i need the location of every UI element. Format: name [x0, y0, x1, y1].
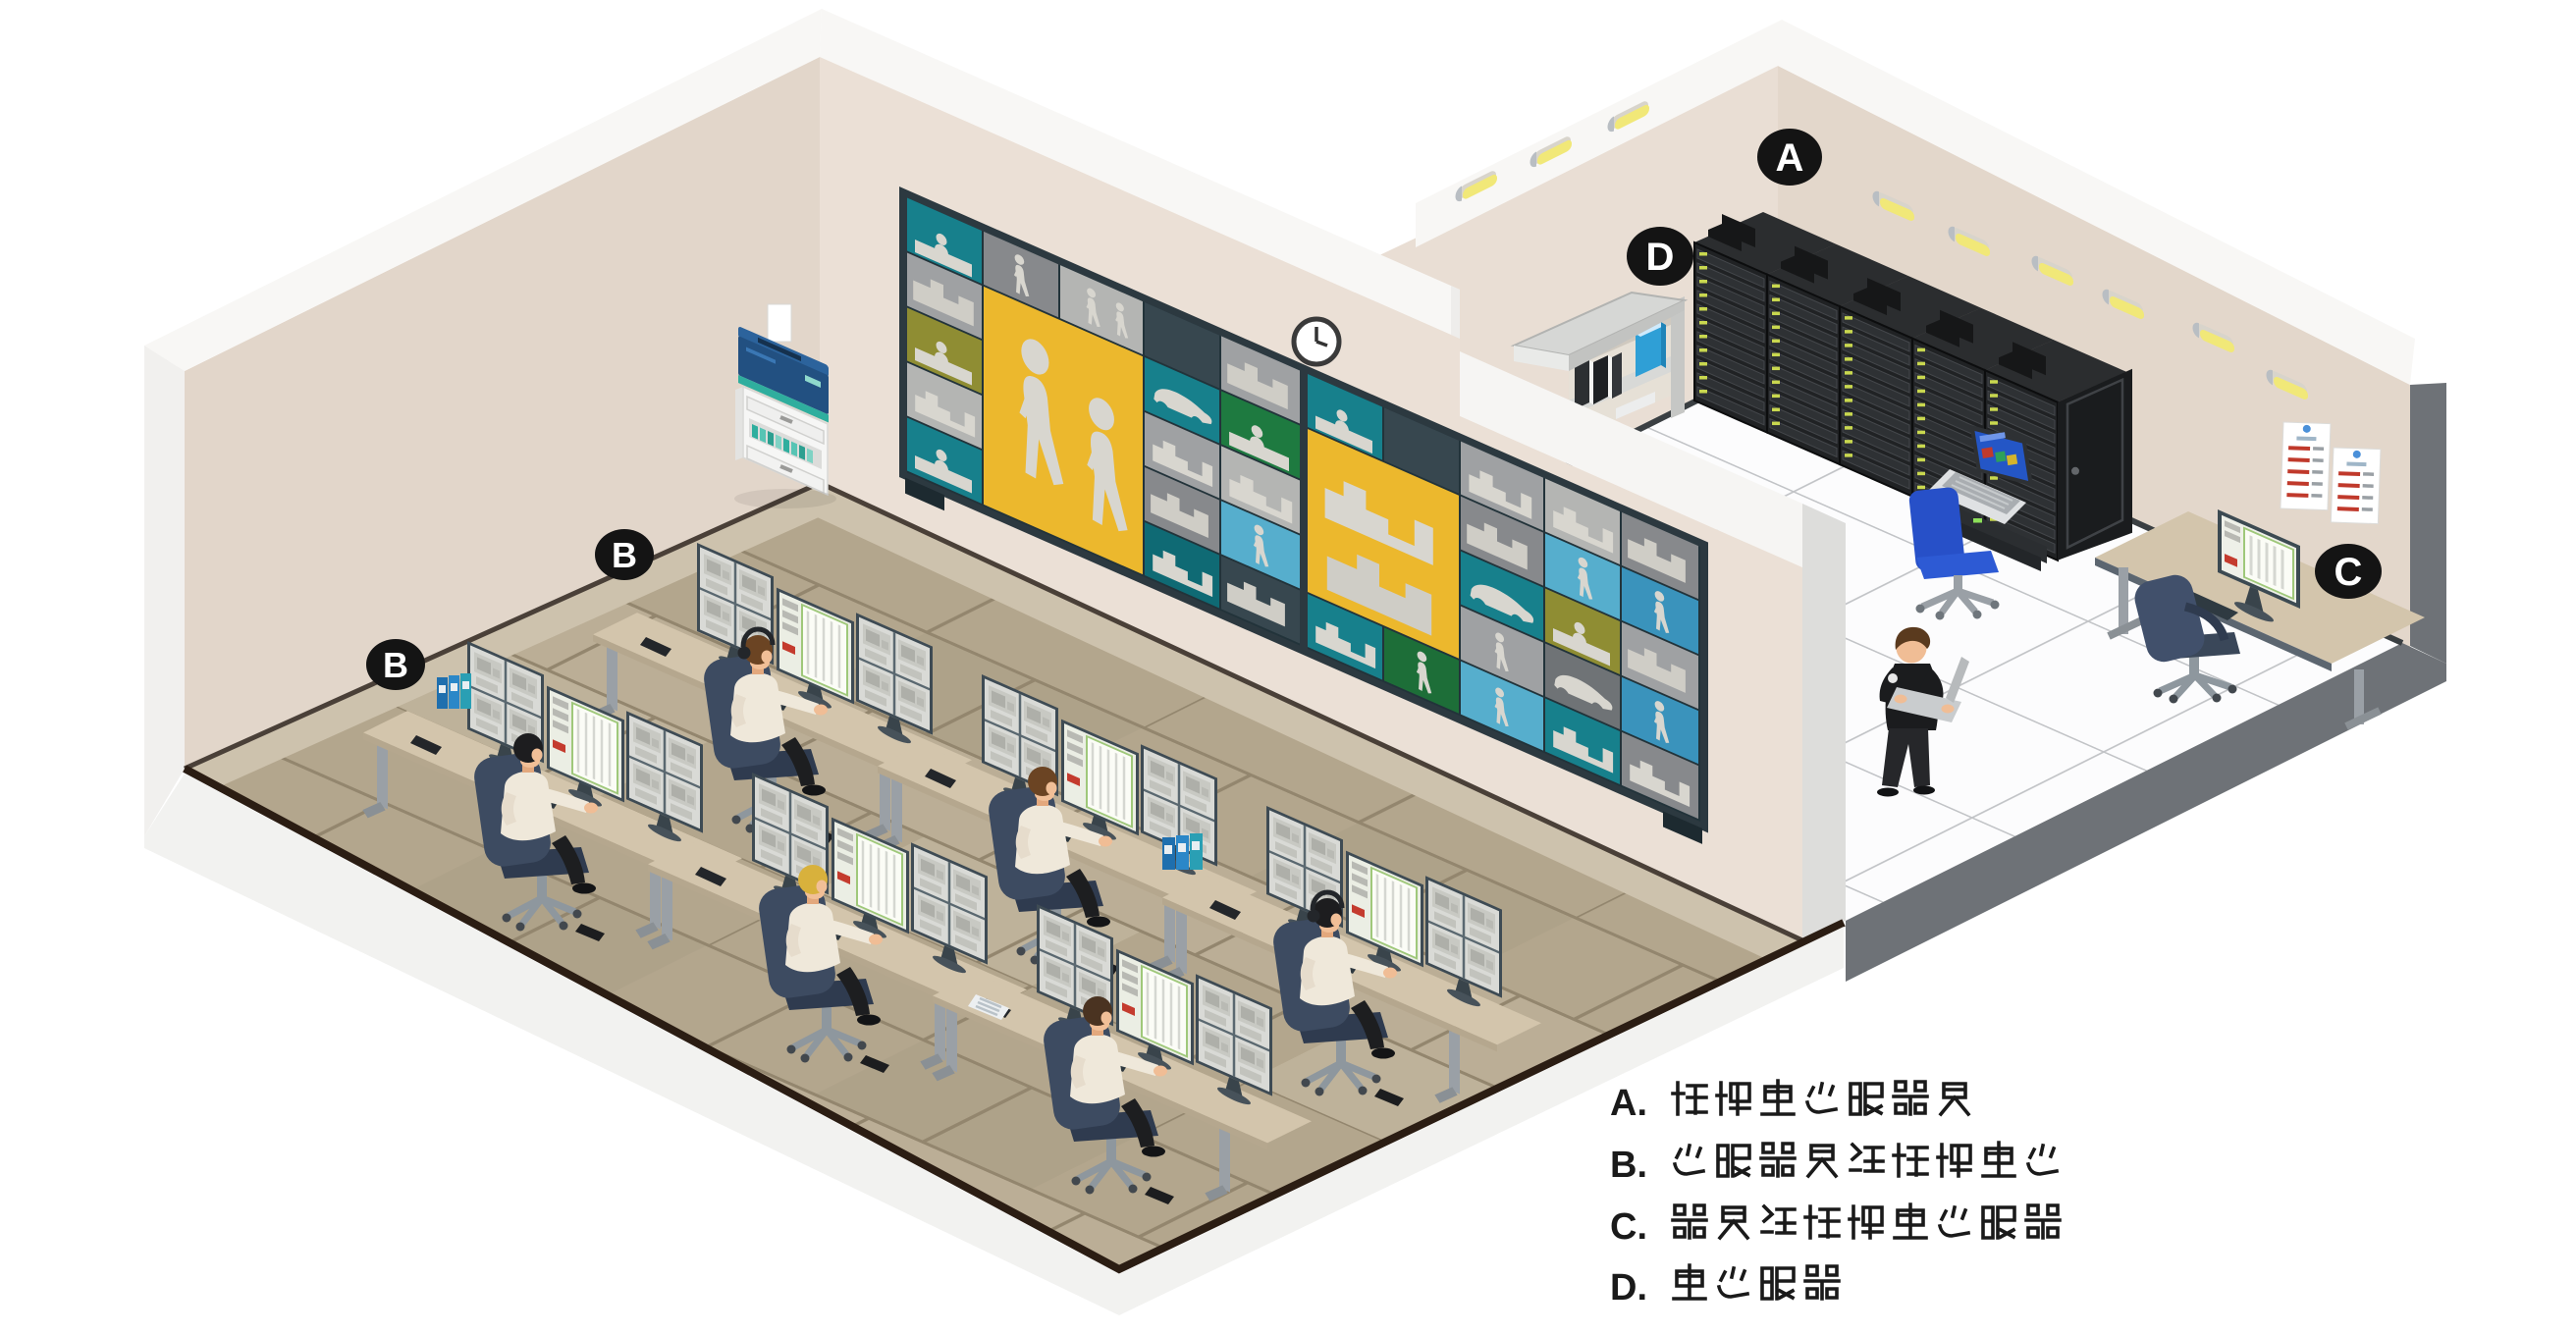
- svg-text:B: B: [612, 535, 637, 575]
- svg-text:D.: D.: [1610, 1267, 1647, 1308]
- svg-text:C.: C.: [1610, 1206, 1647, 1248]
- svg-text:A: A: [1776, 136, 1804, 180]
- svg-text:C: C: [2334, 551, 2363, 594]
- svg-text:B.: B.: [1610, 1145, 1647, 1186]
- svg-text:A.: A.: [1610, 1083, 1647, 1124]
- svg-text:D: D: [1646, 236, 1675, 279]
- svg-text:B: B: [383, 645, 408, 685]
